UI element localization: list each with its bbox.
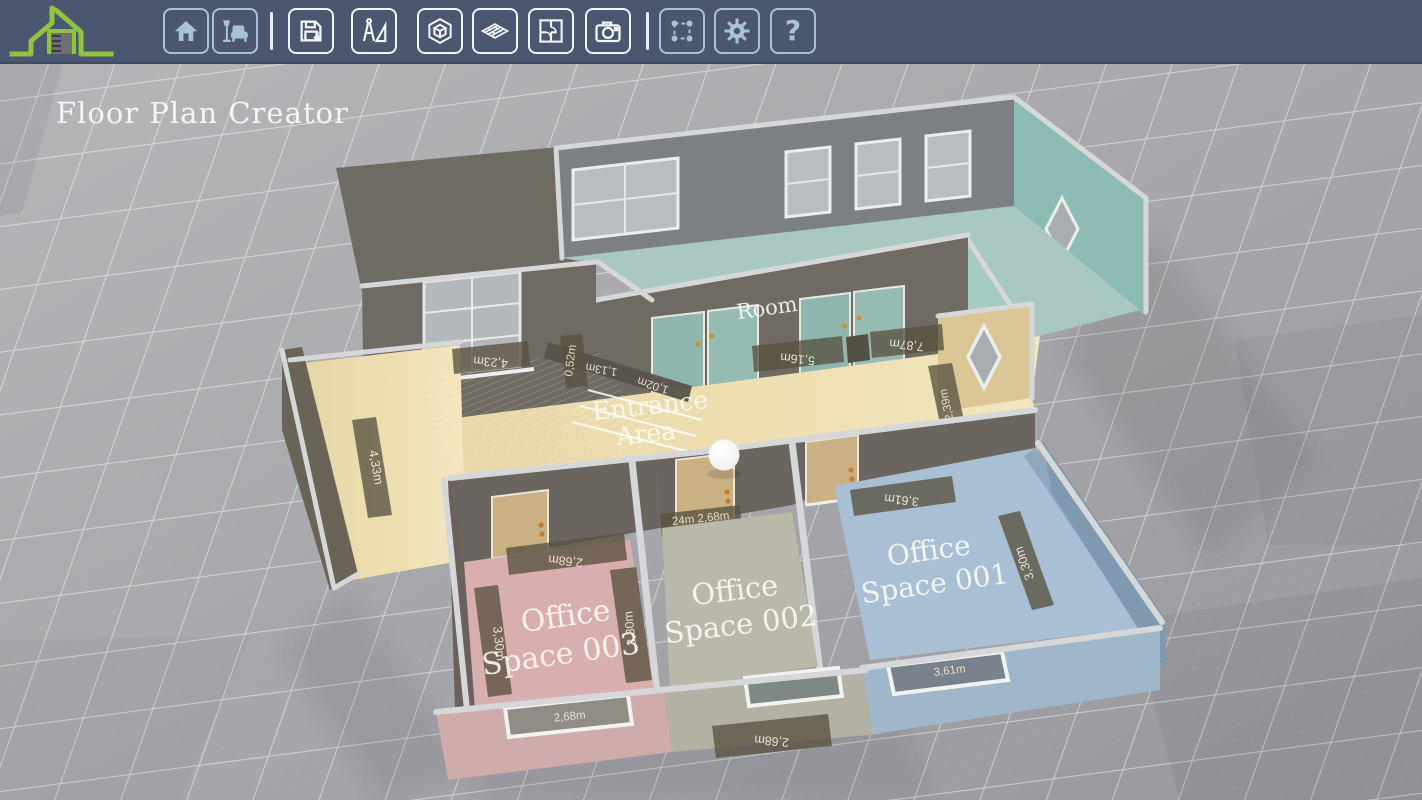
floor-plan-icon	[536, 16, 566, 46]
app-logo	[8, 3, 118, 64]
furniture-icon	[220, 16, 250, 46]
gizmo-sphere[interactable]	[707, 440, 741, 480]
app-window: 4,23m 0,52m 1,13m 1,02m 4,33m 5,16m 7,87…	[0, 0, 1422, 800]
camera-icon	[593, 16, 623, 46]
select-button[interactable]	[659, 8, 705, 54]
furniture-button[interactable]	[212, 8, 258, 54]
help-button[interactable]: ?	[770, 8, 816, 54]
save-icon	[296, 16, 326, 46]
home-icon	[171, 16, 201, 46]
help-icon: ?	[785, 17, 801, 45]
settings-button[interactable]	[714, 8, 760, 54]
home-button[interactable]	[163, 8, 209, 54]
brick-wall-icon	[480, 16, 510, 46]
camera-button[interactable]	[585, 8, 631, 54]
drafting-tools-button[interactable]	[351, 8, 397, 54]
page-title: Floor Plan Creator	[56, 96, 349, 130]
selection-icon	[667, 16, 697, 46]
gear-icon	[722, 16, 752, 46]
view-3d-button[interactable]	[417, 8, 463, 54]
toolbar-separator	[270, 12, 273, 50]
floor-plan-button[interactable]	[528, 8, 574, 54]
toolbar: ?	[0, 0, 1422, 64]
walls-button[interactable]	[472, 8, 518, 54]
save-button[interactable]	[288, 8, 334, 54]
drafting-tools-icon	[359, 16, 389, 46]
toolbar-separator	[646, 12, 649, 50]
cube-3d-icon	[425, 16, 455, 46]
